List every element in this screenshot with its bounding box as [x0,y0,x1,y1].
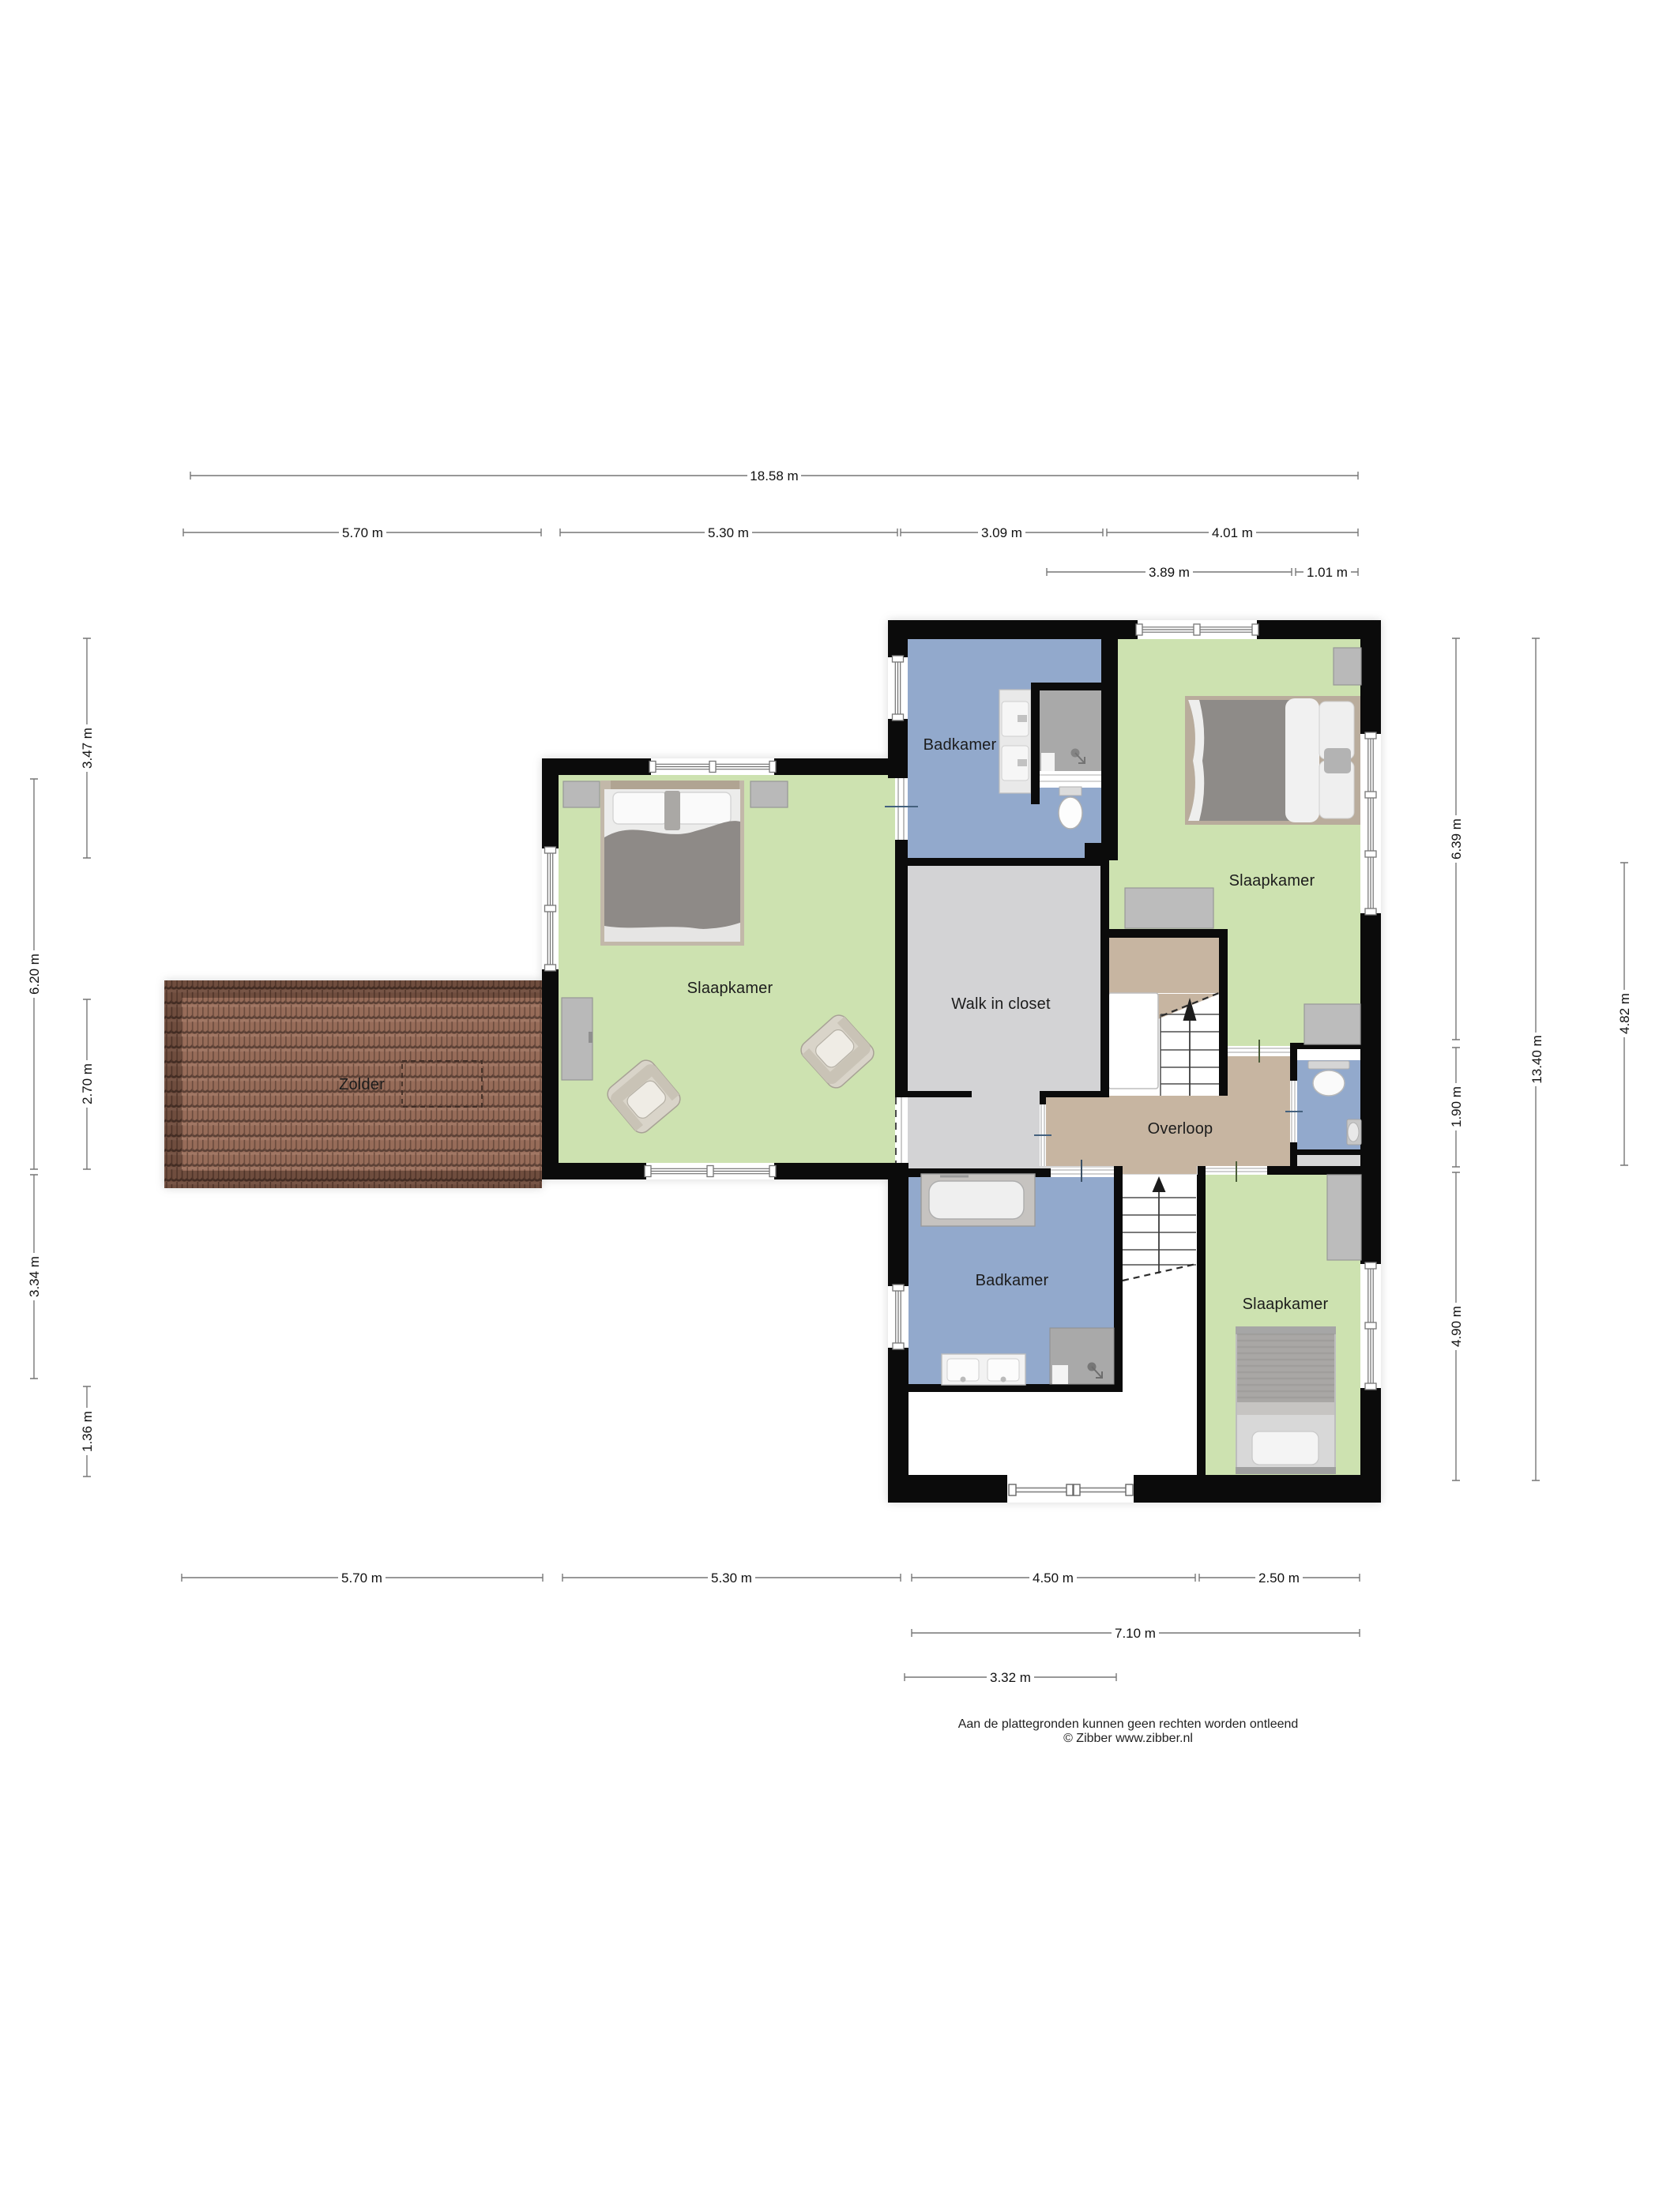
svg-text:2.70 m: 2.70 m [80,1063,95,1104]
svg-text:18.58 m: 18.58 m [750,468,798,483]
svg-text:Zolder: Zolder [339,1076,385,1093]
svg-text:Slaapkamer: Slaapkamer [1229,872,1315,890]
svg-text:5.70 m: 5.70 m [341,1571,382,1586]
svg-text:Overloop: Overloop [1148,1120,1213,1138]
svg-text:3.47 m: 3.47 m [80,728,95,769]
svg-text:Aan de plattegronden kunnen ge: Aan de plattegronden kunnen geen rechten… [958,1717,1299,1731]
svg-text:6.39 m: 6.39 m [1449,818,1464,860]
svg-text:5.30 m: 5.30 m [708,525,749,540]
svg-text:4.90 m: 4.90 m [1449,1306,1464,1347]
svg-text:1.01 m: 1.01 m [1307,565,1348,580]
svg-text:6.20 m: 6.20 m [27,954,42,995]
svg-text:© Zibber www.zibber.nl: © Zibber www.zibber.nl [1063,1732,1193,1745]
svg-text:1.90 m: 1.90 m [1449,1086,1464,1127]
svg-text:13.40 m: 13.40 m [1529,1035,1544,1083]
svg-text:3.32 m: 3.32 m [990,1670,1031,1685]
svg-text:3.09 m: 3.09 m [981,525,1022,540]
svg-text:5.30 m: 5.30 m [711,1571,752,1586]
svg-text:2.50 m: 2.50 m [1258,1571,1300,1586]
svg-text:4.50 m: 4.50 m [1033,1571,1074,1586]
svg-text:7.10 m: 7.10 m [1115,1626,1156,1641]
svg-text:4.82 m: 4.82 m [1617,993,1632,1034]
svg-text:Walk in closet: Walk in closet [951,995,1051,1013]
svg-text:5.70 m: 5.70 m [342,525,383,540]
svg-text:Slaapkamer: Slaapkamer [687,980,773,997]
svg-text:1.36 m: 1.36 m [80,1411,95,1452]
svg-text:3.89 m: 3.89 m [1149,565,1190,580]
svg-text:4.01 m: 4.01 m [1212,525,1253,540]
svg-text:Slaapkamer: Slaapkamer [1243,1296,1329,1313]
svg-text:Badkamer: Badkamer [924,736,997,754]
svg-text:3.34 m: 3.34 m [27,1256,42,1297]
svg-text:Badkamer: Badkamer [976,1272,1049,1289]
